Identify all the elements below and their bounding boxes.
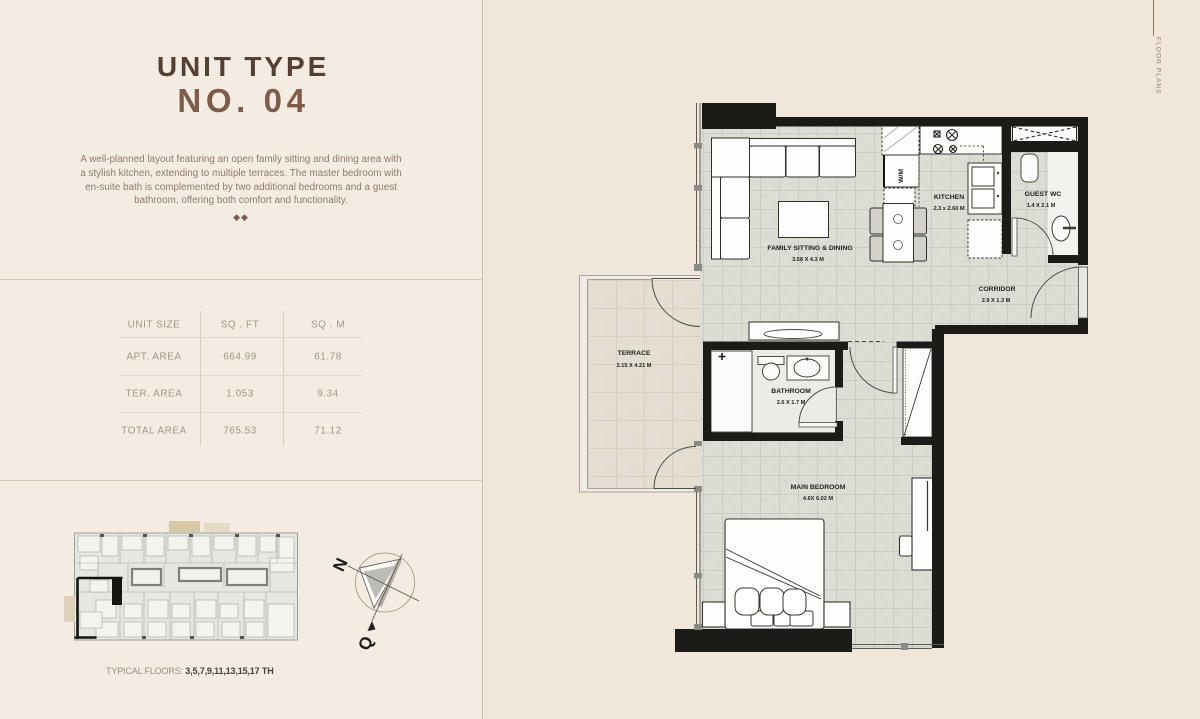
svg-text:4.6X 6.02 M: 4.6X 6.02 M xyxy=(803,496,834,502)
svg-text:2.9 X 1.3 M: 2.9 X 1.3 M xyxy=(982,298,1011,304)
svg-text:GUEST WC: GUEST WC xyxy=(1025,191,1062,198)
svg-text:3.58 X 4.3 M: 3.58 X 4.3 M xyxy=(792,257,824,263)
svg-text:1.4 X 2.1 M: 1.4 X 2.1 M xyxy=(1027,203,1056,209)
svg-text:2.15 X 4.21 M: 2.15 X 4.21 M xyxy=(617,363,652,369)
svg-text:2.3 x 2.60 M: 2.3 x 2.60 M xyxy=(933,206,964,212)
svg-text:TERRACE: TERRACE xyxy=(618,350,651,357)
svg-text:CORRIDOR: CORRIDOR xyxy=(978,286,1015,293)
svg-text:MAIN BEDROOM: MAIN BEDROOM xyxy=(791,484,846,491)
svg-text:2.6 X 1.7 M: 2.6 X 1.7 M xyxy=(777,400,806,406)
svg-text:Q: Q xyxy=(354,633,377,653)
svg-text:KITCHEN: KITCHEN xyxy=(934,194,964,201)
svg-text:W/M: W/M xyxy=(898,169,905,183)
svg-text:FAMILY SITTING & DINING: FAMILY SITTING & DINING xyxy=(767,245,852,252)
svg-text:N: N xyxy=(329,555,351,574)
svg-text:BATHROOM: BATHROOM xyxy=(771,388,811,395)
